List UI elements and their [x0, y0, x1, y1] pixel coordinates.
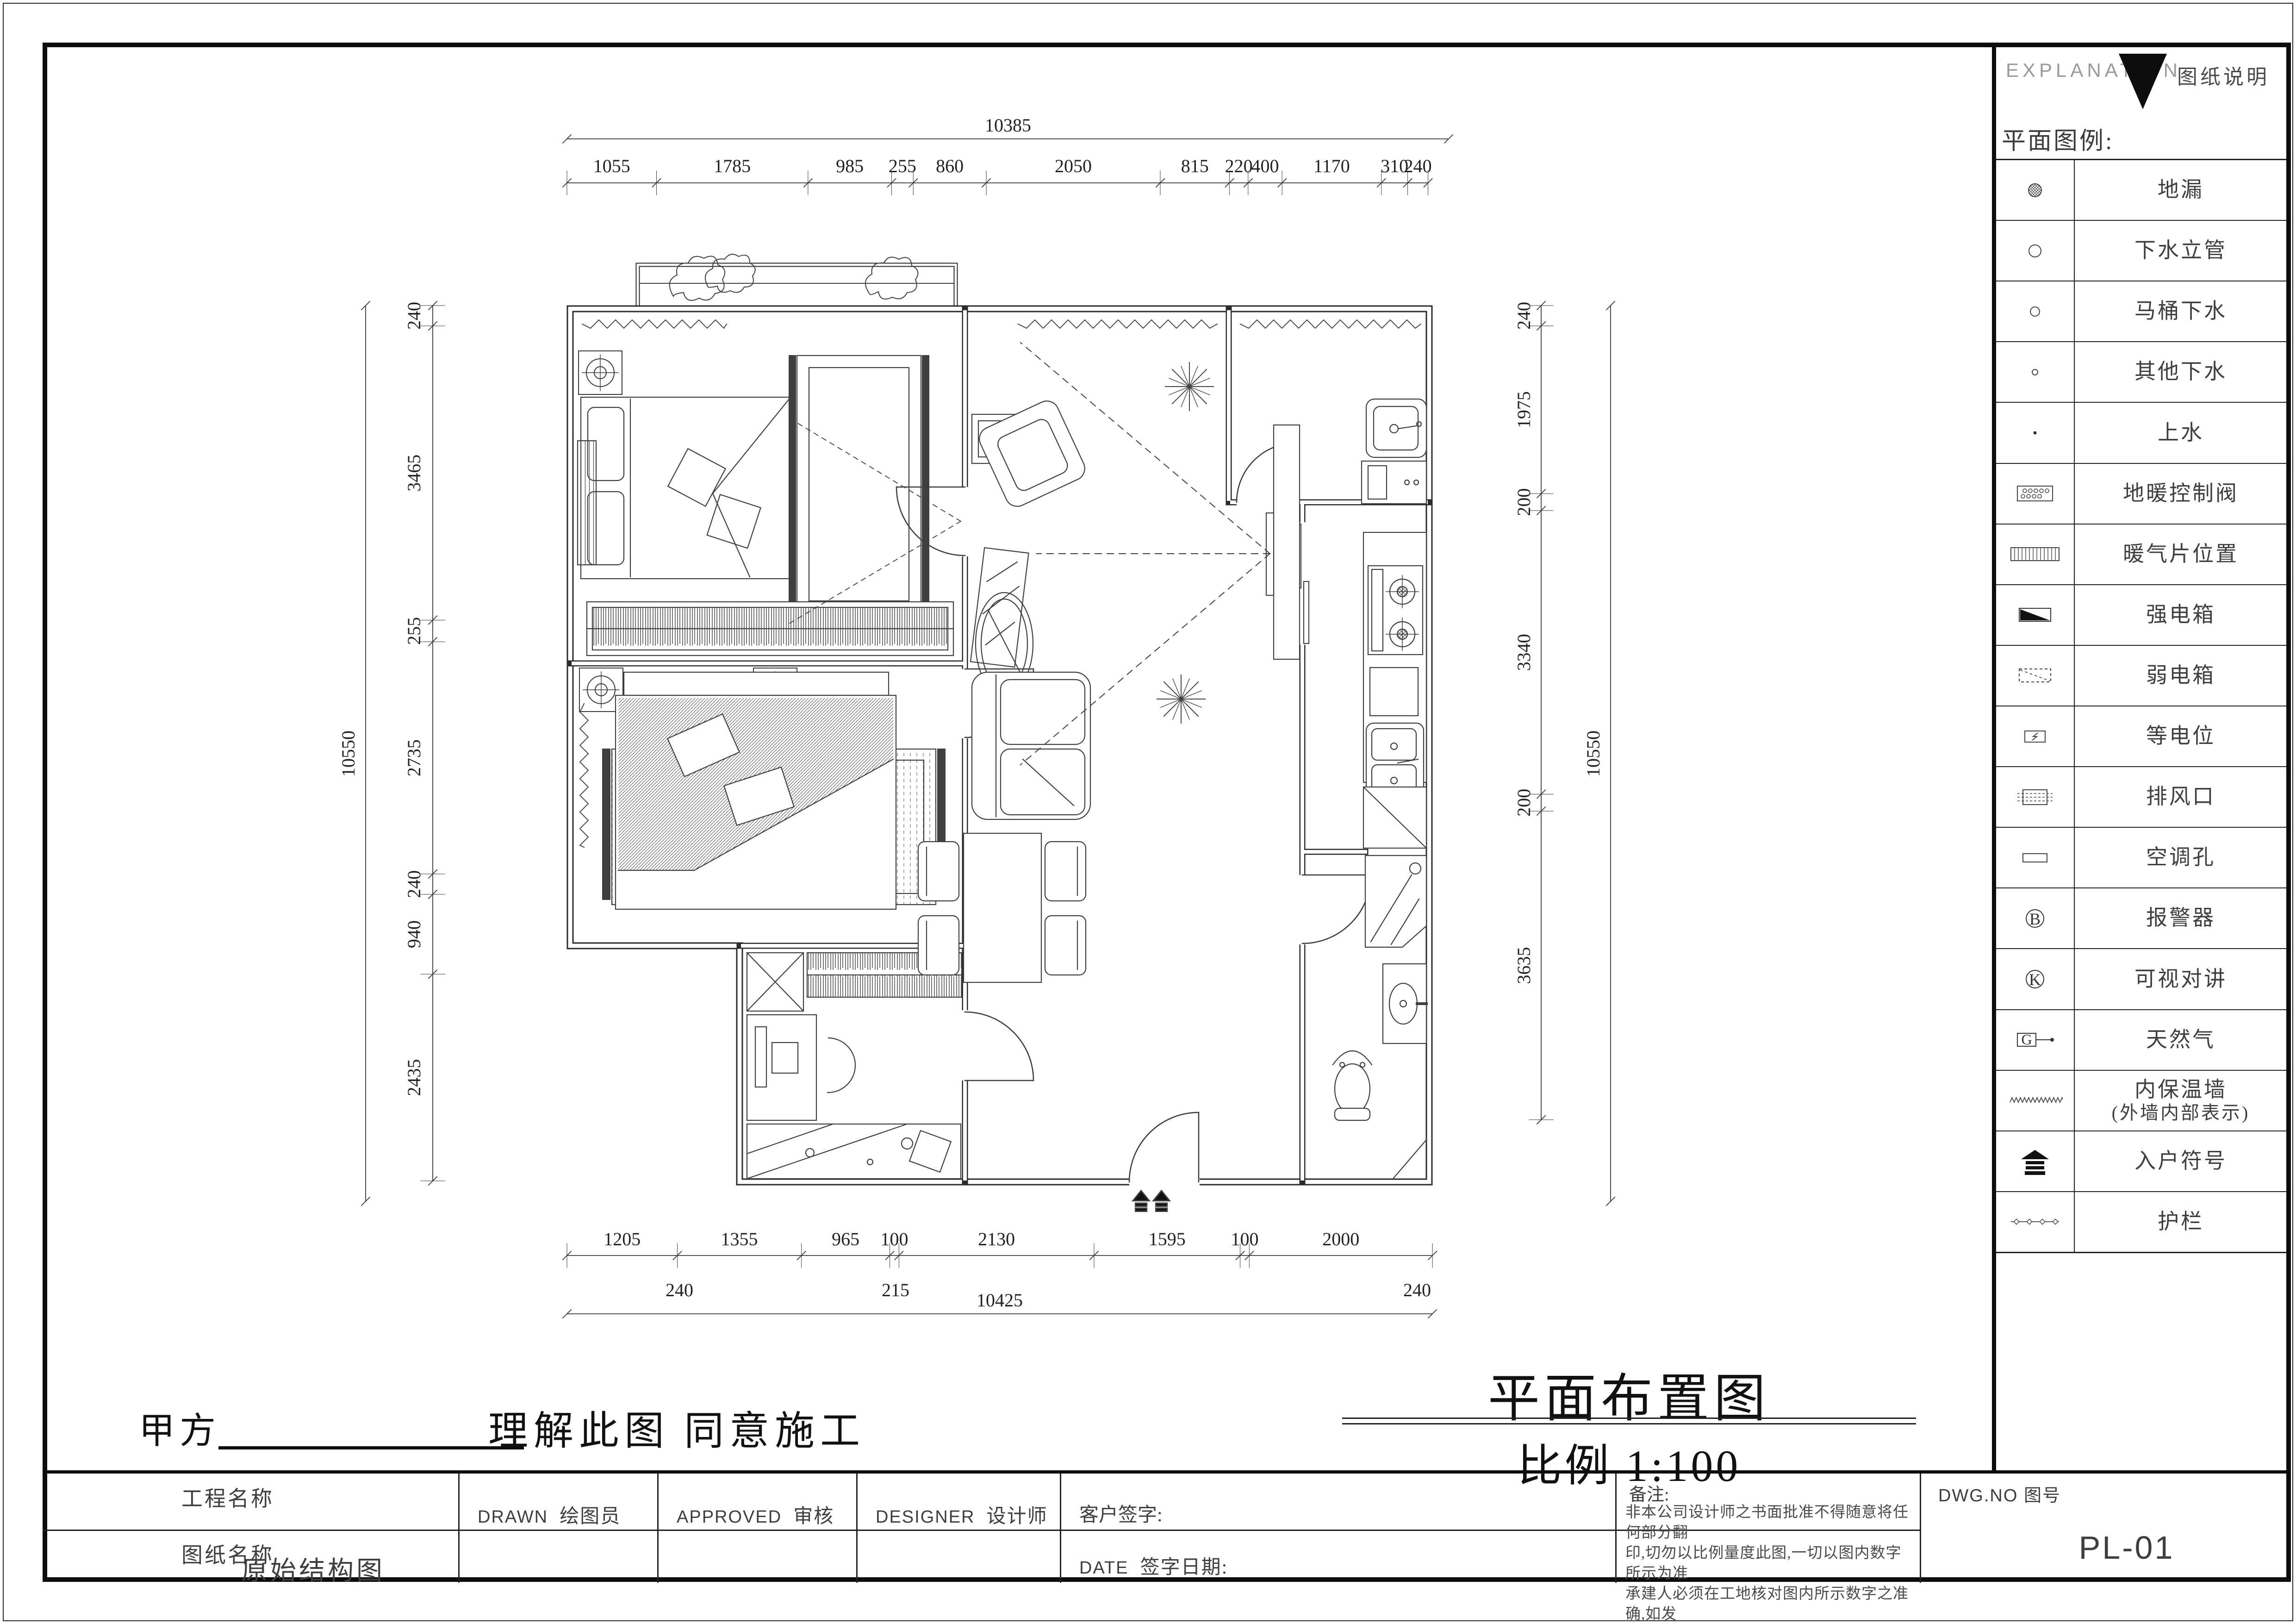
- agree-label: 同意施工: [684, 1398, 865, 1456]
- svg-text:10550: 10550: [338, 731, 359, 777]
- svg-text:3635: 3635: [1513, 947, 1534, 984]
- svg-text:215: 215: [882, 1280, 909, 1300]
- bedroom2: [579, 668, 941, 909]
- svg-text:1355: 1355: [721, 1229, 758, 1249]
- entry-door: [1129, 1112, 1199, 1182]
- bed-double: [581, 397, 789, 579]
- bedside-table: [579, 351, 622, 394]
- dwg-no-label: DWG.NO 图号: [1938, 1481, 2061, 1506]
- tb-line: [1920, 1474, 1921, 1583]
- svg-text:240: 240: [404, 302, 424, 330]
- svg-text:220: 220: [1225, 156, 1253, 176]
- drawing-sheet: EXPLANATION 图纸说明 平面图例: 地漏下水立管马桶下水其他下水上水地…: [0, 0, 2296, 1624]
- svg-text:1595: 1595: [1149, 1229, 1186, 1249]
- tb-line: [458, 1474, 460, 1583]
- tv-cabinet: [1266, 425, 1300, 659]
- svg-text:965: 965: [832, 1229, 859, 1249]
- svg-text:860: 860: [936, 156, 964, 176]
- bedroom1: [578, 351, 961, 656]
- corner-counter: [1363, 787, 1426, 848]
- svg-text:240: 240: [1404, 156, 1432, 176]
- svg-text:240: 240: [1403, 1280, 1431, 1300]
- client-sign-label: 客户签字:: [1079, 1499, 1163, 1527]
- tb-line: [657, 1474, 659, 1583]
- utility-sink: [1366, 399, 1426, 457]
- bathroom: [1333, 856, 1426, 1179]
- svg-text:2000: 2000: [1322, 1229, 1359, 1249]
- closet: [747, 953, 803, 1011]
- date-label: DATE 签字日期:: [1079, 1551, 1228, 1580]
- svg-text:200: 200: [1513, 488, 1534, 516]
- svg-text:985: 985: [836, 156, 864, 176]
- svg-text:1170: 1170: [1313, 156, 1350, 176]
- kitchen: [1363, 532, 1426, 848]
- svg-text:10550: 10550: [1583, 731, 1604, 777]
- washing-machine: [1362, 461, 1426, 504]
- study: [747, 953, 962, 1179]
- svg-text:255: 255: [889, 156, 916, 176]
- plant: [1165, 362, 1213, 411]
- title-block: 工程名称 图纸名称 原始结构图 DRAWN 绘图员 APPROVED 审核 DE…: [43, 1470, 2291, 1583]
- dwg-no-value: PL-01: [1920, 1529, 2296, 1566]
- plan-title: 平面布置图: [1342, 1356, 1916, 1431]
- svg-text:3340: 3340: [1513, 634, 1534, 671]
- svg-text:1975: 1975: [1513, 391, 1534, 428]
- svg-text:240: 240: [404, 870, 424, 898]
- svg-text:255: 255: [404, 617, 424, 645]
- svg-text:940: 940: [404, 920, 424, 948]
- party-a-label: 甲方: [139, 1402, 220, 1454]
- party-a-signature-line: [218, 1446, 524, 1449]
- bathroom-door: [1302, 875, 1371, 943]
- rug: [792, 356, 926, 613]
- svg-text:240: 240: [666, 1280, 693, 1300]
- tb-line: [1060, 1474, 1061, 1583]
- single-bed: [747, 1124, 961, 1179]
- svg-text:2735: 2735: [404, 739, 424, 776]
- balcony-plants: [670, 254, 918, 300]
- cooktop: [1368, 566, 1423, 655]
- understand-label: 理解此图: [488, 1398, 670, 1456]
- study-door: [965, 1012, 1033, 1081]
- floor-plan: 1038510551785985255860205081522040011703…: [0, 0, 2296, 1624]
- svg-text:3465: 3465: [404, 455, 424, 492]
- drawing-name-value: 原始结构图: [242, 1550, 385, 1587]
- notes-text: 非本公司设计师之书面批准不得随意将任何部分翻印,切勿以比例量度此图,一切以图内数…: [1625, 1502, 1917, 1624]
- svg-text:2435: 2435: [404, 1059, 424, 1096]
- title-underline: [1342, 1418, 1916, 1419]
- bedroom1-door: [896, 487, 965, 556]
- approved-label: APPROVED 审核: [677, 1500, 834, 1529]
- svg-text:200: 200: [1513, 789, 1534, 817]
- floor-mirror: [971, 548, 1029, 667]
- svg-text:10425: 10425: [977, 1290, 1023, 1311]
- radiator: [578, 441, 596, 565]
- svg-text:400: 400: [1251, 156, 1279, 176]
- corner-niche: [1393, 1140, 1426, 1179]
- svg-text:100: 100: [1231, 1229, 1258, 1249]
- title-underline2: [1342, 1423, 1916, 1424]
- bookshelf: [587, 602, 953, 656]
- loveseat: [972, 672, 1090, 819]
- notes-label: 备注:: [1629, 1480, 1669, 1505]
- svg-text:10385: 10385: [985, 115, 1031, 136]
- shower: [1365, 856, 1426, 947]
- project-name-label: 工程名称: [181, 1482, 274, 1512]
- tb-line: [1615, 1474, 1617, 1583]
- svg-text:815: 815: [1181, 156, 1209, 176]
- drawn-label: DRAWN 绘图员: [478, 1500, 621, 1529]
- sight-lines: [787, 417, 961, 625]
- tb-line: [856, 1474, 858, 1583]
- svg-text:240: 240: [1513, 302, 1534, 330]
- svg-text:1205: 1205: [604, 1229, 641, 1249]
- svg-text:100: 100: [880, 1229, 908, 1249]
- toilet: [1333, 1051, 1372, 1120]
- utility-room: [1362, 399, 1426, 504]
- bed-double: [616, 672, 896, 909]
- entry-symbol: [1133, 1191, 1170, 1212]
- dining-table: [964, 833, 1041, 982]
- designer-label: DESIGNER 设计师: [876, 1500, 1048, 1529]
- svg-text:2050: 2050: [1055, 156, 1092, 176]
- svg-text:1785: 1785: [714, 156, 751, 176]
- svg-text:2130: 2130: [978, 1229, 1015, 1249]
- dining-area: [918, 833, 1086, 982]
- living-room: [971, 343, 1300, 819]
- plant: [1157, 675, 1205, 723]
- vanity-sink: [1383, 964, 1426, 1043]
- desk-computer: [747, 1015, 855, 1120]
- svg-text:1055: 1055: [593, 156, 630, 176]
